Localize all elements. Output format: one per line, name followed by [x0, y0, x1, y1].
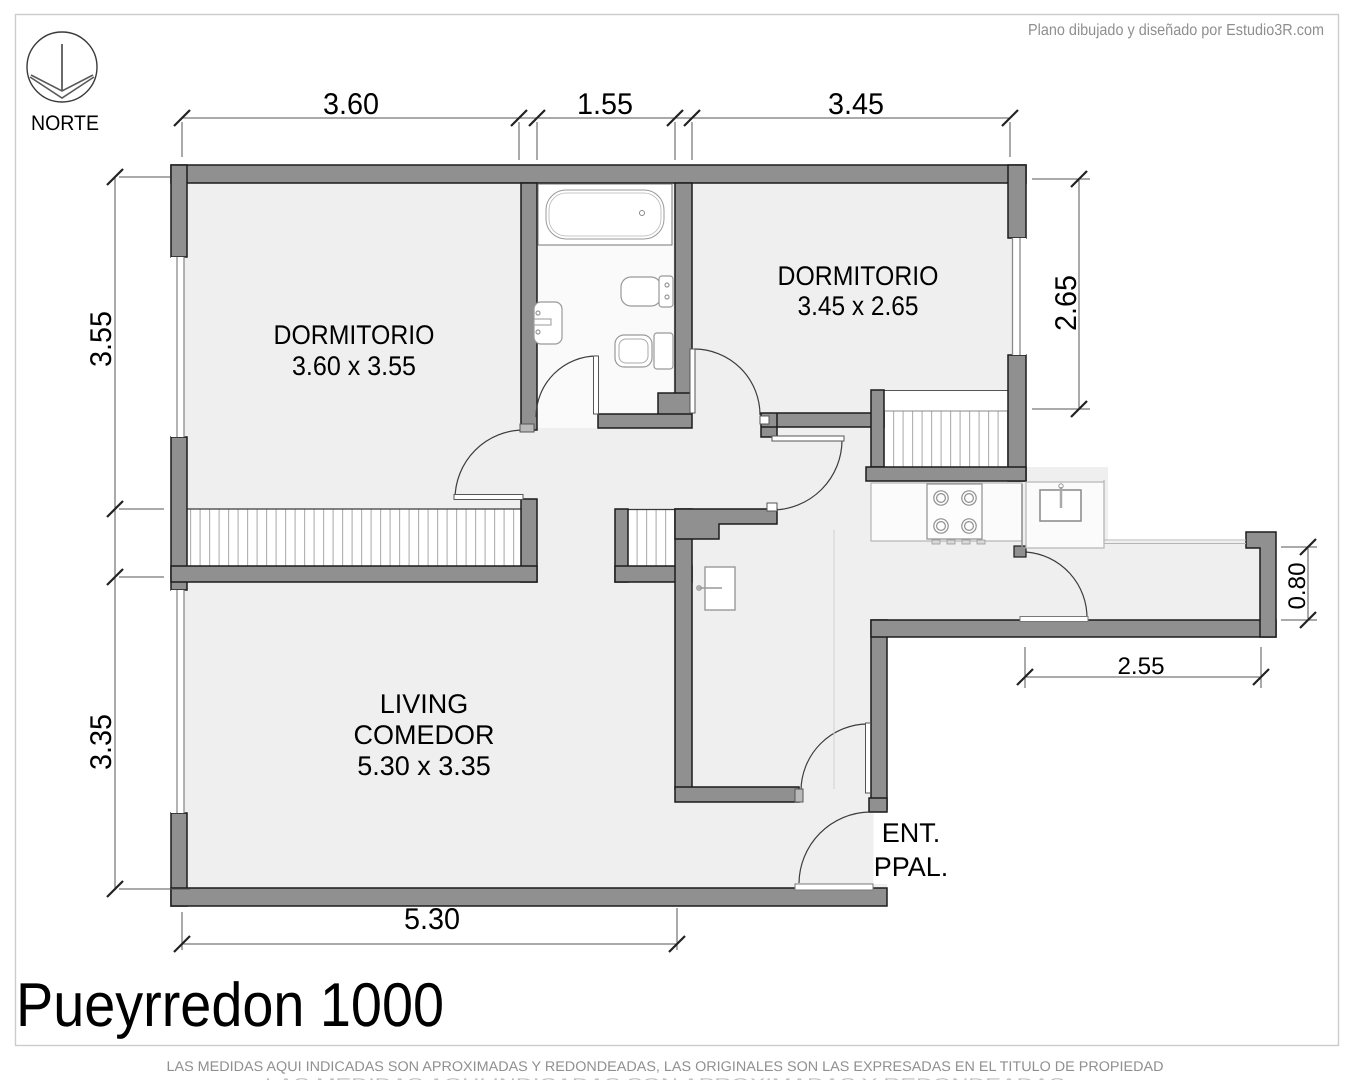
svg-text:Pueyrredon 1000: Pueyrredon 1000 [16, 971, 444, 1040]
svg-text:ENT.: ENT. [882, 818, 941, 848]
svg-text:PPAL.: PPAL. [874, 852, 949, 882]
svg-text:2.65: 2.65 [1050, 275, 1083, 331]
svg-text:3.55: 3.55 [85, 311, 118, 367]
svg-text:DORMITORIO: DORMITORIO [778, 261, 939, 291]
svg-text:3.60: 3.60 [323, 88, 379, 121]
svg-text:Plano dibujado y diseñado por: Plano dibujado y diseñado por Estudio3R.… [1028, 22, 1324, 39]
svg-text:3.45 x 2.65: 3.45 x 2.65 [798, 291, 919, 321]
svg-text:COMEDOR: COMEDOR [354, 720, 495, 750]
svg-text:5.30: 5.30 [404, 903, 460, 936]
svg-text:0.80: 0.80 [1284, 563, 1311, 610]
svg-text:LAS MEDIDAS AQUI INDICADAS SON: LAS MEDIDAS AQUI INDICADAS SON APROXIMAD… [265, 1075, 1065, 1080]
svg-text:LIVING: LIVING [380, 689, 469, 719]
svg-text:5.30 x 3.35: 5.30 x 3.35 [357, 751, 491, 781]
svg-text:3.45: 3.45 [828, 88, 884, 121]
svg-text:2.55: 2.55 [1118, 653, 1165, 680]
svg-text:DORMITORIO: DORMITORIO [274, 320, 435, 350]
svg-text:LAS MEDIDAS AQUI INDICADAS SON: LAS MEDIDAS AQUI INDICADAS SON APROXIMAD… [167, 1058, 1164, 1074]
svg-text:1.55: 1.55 [577, 88, 633, 121]
svg-text:3.60 x 3.55: 3.60 x 3.55 [292, 351, 416, 381]
svg-text:3.35: 3.35 [85, 714, 118, 770]
svg-text:NORTE: NORTE [31, 112, 99, 135]
